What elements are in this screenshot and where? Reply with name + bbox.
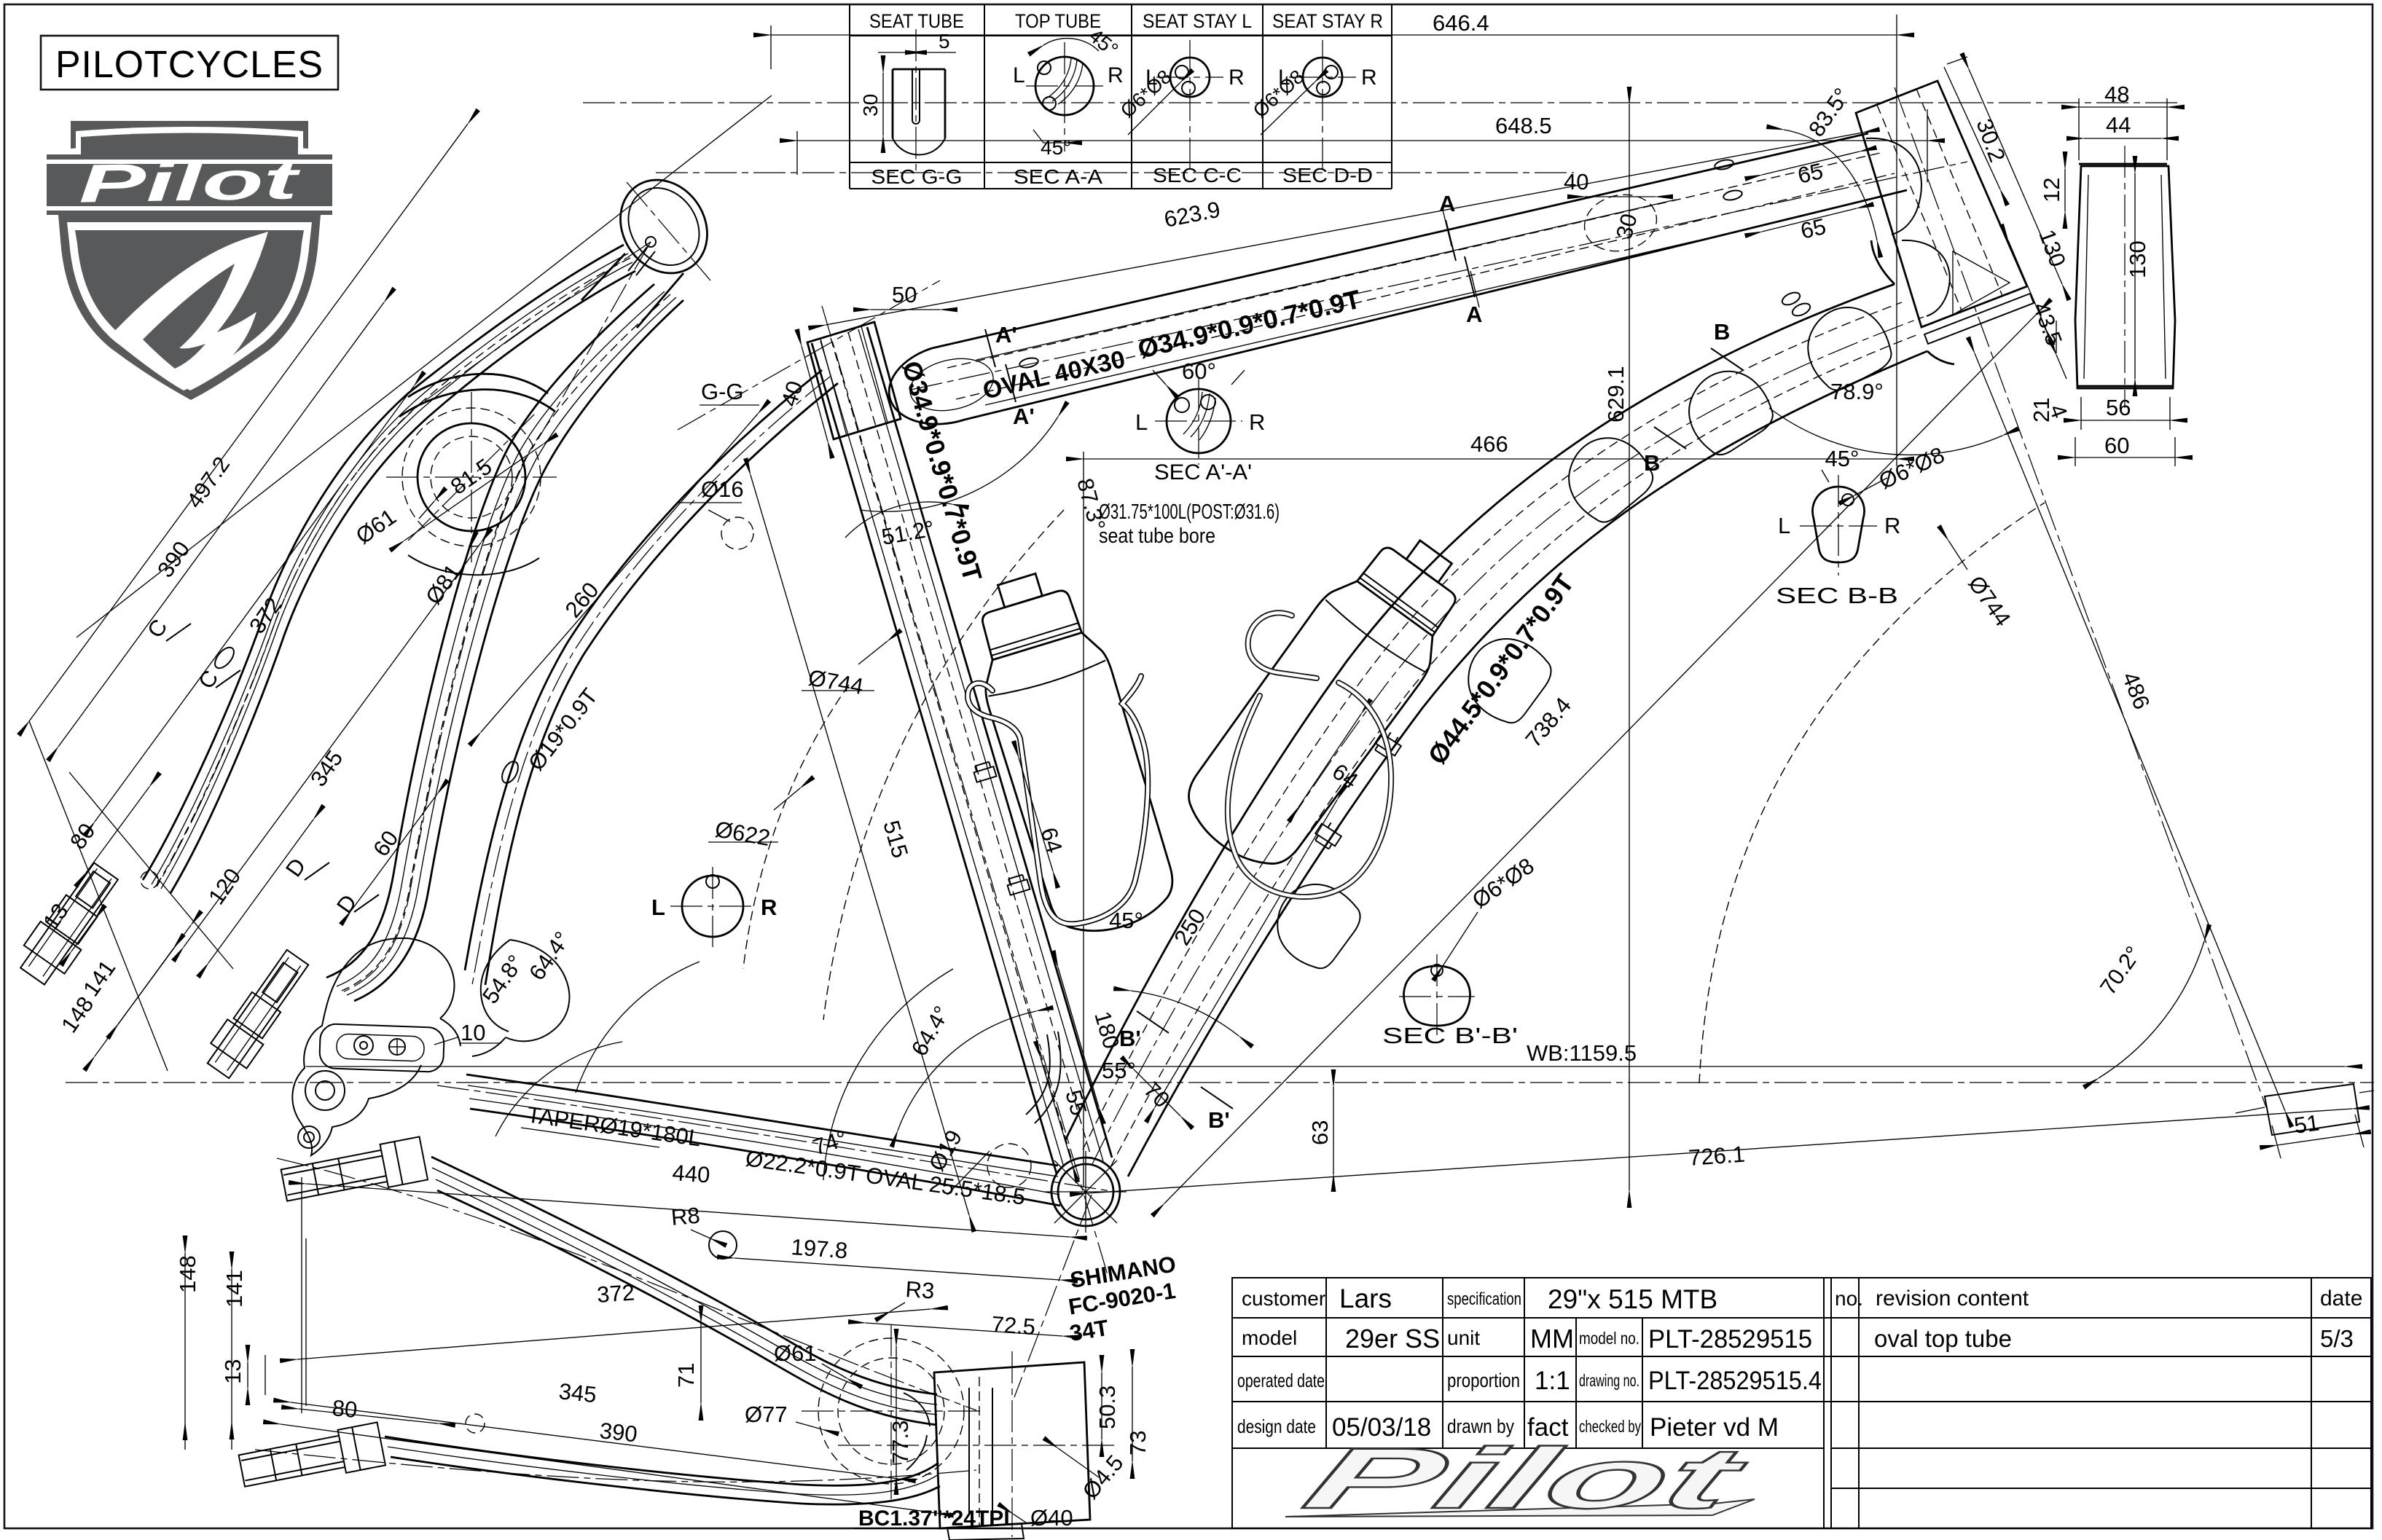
svg-text:design date: design date xyxy=(1237,1415,1316,1437)
svg-text:1:1: 1:1 xyxy=(1535,1367,1570,1395)
svg-text:55°: 55° xyxy=(1102,1058,1136,1083)
svg-text:oval top tube: oval top tube xyxy=(1874,1325,2012,1352)
svg-text:629.1: 629.1 xyxy=(1603,366,1629,423)
svg-text:Ø61: Ø61 xyxy=(774,1340,817,1366)
svg-text:SEC A-A: SEC A-A xyxy=(1014,165,1102,188)
svg-text:44: 44 xyxy=(2106,112,2131,138)
svg-text:B: B xyxy=(1714,319,1730,345)
svg-text:71: 71 xyxy=(673,1363,699,1388)
svg-text:WB:1159.5: WB:1159.5 xyxy=(1527,1040,1637,1066)
svg-text:L: L xyxy=(1013,63,1025,87)
svg-text:60: 60 xyxy=(2104,433,2129,458)
svg-text:L: L xyxy=(1778,513,1790,538)
svg-text:48: 48 xyxy=(2104,82,2129,107)
svg-text:SEAT STAY R: SEAT STAY R xyxy=(1272,10,1383,32)
svg-text:77.3: 77.3 xyxy=(888,1421,913,1464)
svg-text:A': A' xyxy=(1013,404,1035,429)
svg-text:Ø16: Ø16 xyxy=(701,476,744,502)
svg-text:L: L xyxy=(1135,409,1148,435)
svg-text:proportion: proportion xyxy=(1447,1370,1520,1391)
svg-text:SEC C-C: SEC C-C xyxy=(1153,164,1242,186)
svg-text:unit: unit xyxy=(1447,1327,1480,1349)
svg-text:5/3: 5/3 xyxy=(2320,1325,2354,1352)
svg-text:PLT-28529515.4: PLT-28529515.4 xyxy=(1648,1367,1822,1395)
svg-text:130: 130 xyxy=(2125,240,2150,278)
svg-text:SEC A'-A': SEC A'-A' xyxy=(1154,460,1252,484)
svg-text:440: 440 xyxy=(672,1160,711,1188)
svg-text:specification: specification xyxy=(1447,1289,1521,1309)
svg-text:SEC B'-B': SEC B'-B' xyxy=(1382,1023,1518,1048)
svg-text:5: 5 xyxy=(939,30,950,52)
svg-text:model: model xyxy=(1242,1327,1297,1349)
svg-text:390: 390 xyxy=(598,1418,638,1447)
svg-text:466: 466 xyxy=(1470,431,1508,457)
svg-text:model no.: model no. xyxy=(1579,1329,1639,1348)
svg-text:345: 345 xyxy=(557,1378,598,1407)
svg-text:R: R xyxy=(1884,513,1900,538)
svg-text:12: 12 xyxy=(2039,178,2064,203)
svg-text:SEC B-B: SEC B-B xyxy=(1776,583,1898,608)
svg-text:648.5: 648.5 xyxy=(1495,113,1552,138)
svg-text:Pilot: Pilot xyxy=(78,149,302,213)
svg-text:45°: 45° xyxy=(1825,446,1860,471)
svg-text:Ø40: Ø40 xyxy=(1030,1505,1073,1531)
svg-text:Ø31.75*100L(POST:Ø31.6): Ø31.75*100L(POST:Ø31.6) xyxy=(1099,500,1280,524)
svg-text:Pilot: Pilot xyxy=(1291,1431,1760,1527)
svg-text:141: 141 xyxy=(222,1270,247,1308)
svg-text:seat tube bore: seat tube bore xyxy=(1099,525,1215,548)
svg-text:80: 80 xyxy=(331,1395,358,1423)
svg-text:SEC D-D: SEC D-D xyxy=(1282,164,1373,186)
svg-text:G-G: G-G xyxy=(701,379,744,404)
svg-text:SEAT STAY L: SEAT STAY L xyxy=(1143,10,1252,32)
svg-text:50.3: 50.3 xyxy=(1094,1386,1120,1429)
svg-text:revision content: revision content xyxy=(1876,1286,2029,1311)
svg-text:56: 56 xyxy=(2106,395,2131,420)
svg-text:A: A xyxy=(1466,302,1482,327)
svg-text:A': A' xyxy=(995,322,1017,347)
svg-text:45°: 45° xyxy=(1041,136,1071,159)
svg-text:29er SS: 29er SS xyxy=(1345,1324,1440,1354)
svg-text:R: R xyxy=(1249,409,1265,435)
svg-text:TOP TUBE: TOP TUBE xyxy=(1015,10,1101,32)
svg-text:197.8: 197.8 xyxy=(791,1234,849,1263)
svg-text:29"x 515 MTB: 29"x 515 MTB xyxy=(1548,1284,1717,1314)
svg-text:R3: R3 xyxy=(905,1276,936,1304)
svg-text:operated date: operated date xyxy=(1237,1370,1325,1391)
svg-text:726.1: 726.1 xyxy=(1688,1142,1746,1171)
svg-text:R: R xyxy=(1229,66,1245,90)
svg-text:drawing no.: drawing no. xyxy=(1579,1371,1639,1390)
svg-text:21: 21 xyxy=(2029,398,2054,423)
svg-text:Ø77: Ø77 xyxy=(745,1402,788,1427)
svg-text:date: date xyxy=(2320,1286,2362,1311)
svg-text:73: 73 xyxy=(1125,1431,1151,1455)
svg-text:63: 63 xyxy=(1307,1120,1333,1145)
svg-text:no.: no. xyxy=(1835,1287,1863,1310)
svg-text:13: 13 xyxy=(220,1359,246,1384)
svg-text:50: 50 xyxy=(892,282,917,307)
svg-text:R8: R8 xyxy=(670,1203,702,1230)
svg-text:B: B xyxy=(1644,450,1660,476)
svg-text:PILOTCYCLES: PILOTCYCLES xyxy=(55,44,324,86)
svg-text:45°: 45° xyxy=(1109,908,1143,933)
svg-text:SEAT TUBE: SEAT TUBE xyxy=(869,10,964,32)
svg-text:customer: customer xyxy=(1242,1287,1325,1310)
svg-text:A: A xyxy=(1439,191,1455,216)
svg-text:72.5: 72.5 xyxy=(991,1311,1037,1340)
svg-text:372: 372 xyxy=(596,1279,635,1308)
svg-text:R: R xyxy=(1361,66,1377,90)
svg-text:R: R xyxy=(1108,63,1124,87)
svg-text:10: 10 xyxy=(461,1020,485,1045)
svg-text:51: 51 xyxy=(2292,1109,2321,1138)
svg-text:60°: 60° xyxy=(1182,358,1216,384)
svg-text:SEC G-G: SEC G-G xyxy=(871,165,963,188)
svg-text:R: R xyxy=(761,895,777,920)
svg-text:L: L xyxy=(651,895,665,920)
svg-text:MM: MM xyxy=(1530,1324,1574,1354)
svg-text:B': B' xyxy=(1208,1107,1230,1133)
svg-text:Lars: Lars xyxy=(1339,1284,1392,1313)
svg-text:BC1.37"*24TPI: BC1.37"*24TPI xyxy=(858,1506,1010,1531)
svg-text:148: 148 xyxy=(175,1255,200,1293)
svg-text:40: 40 xyxy=(1564,169,1588,195)
svg-text:PLT-28529515: PLT-28529515 xyxy=(1648,1325,1812,1354)
svg-text:646.4: 646.4 xyxy=(1433,10,1489,36)
svg-text:30: 30 xyxy=(859,94,882,117)
